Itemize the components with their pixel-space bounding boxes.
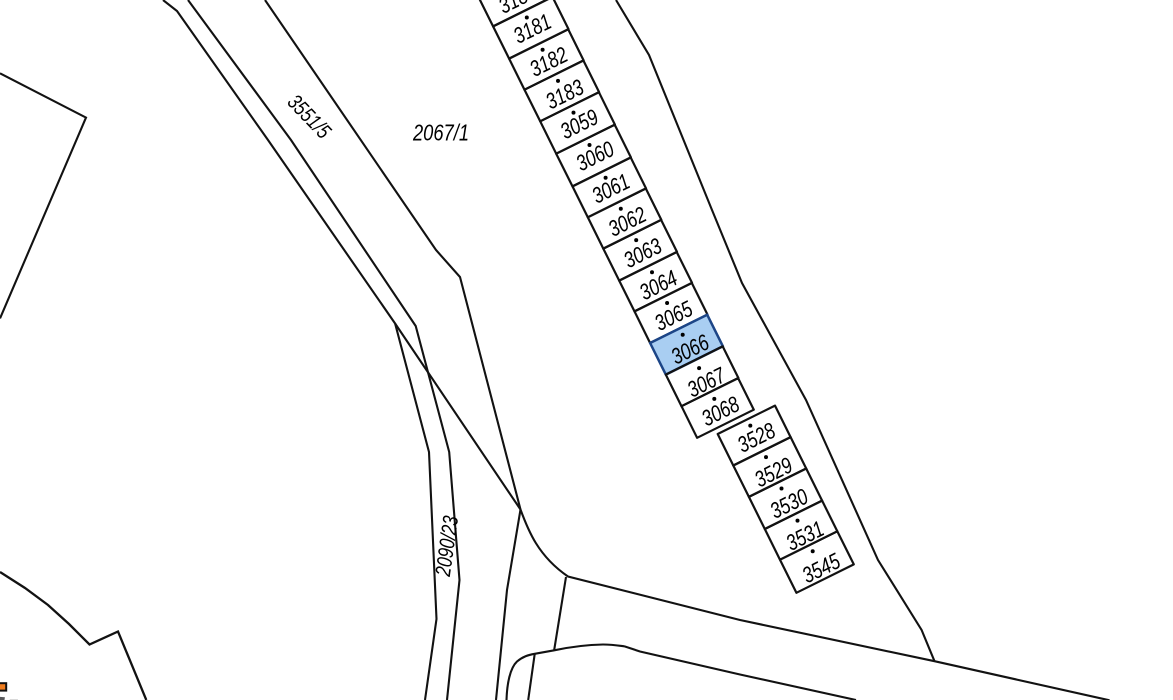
svg-text:2067/1: 2067/1 xyxy=(412,120,469,146)
